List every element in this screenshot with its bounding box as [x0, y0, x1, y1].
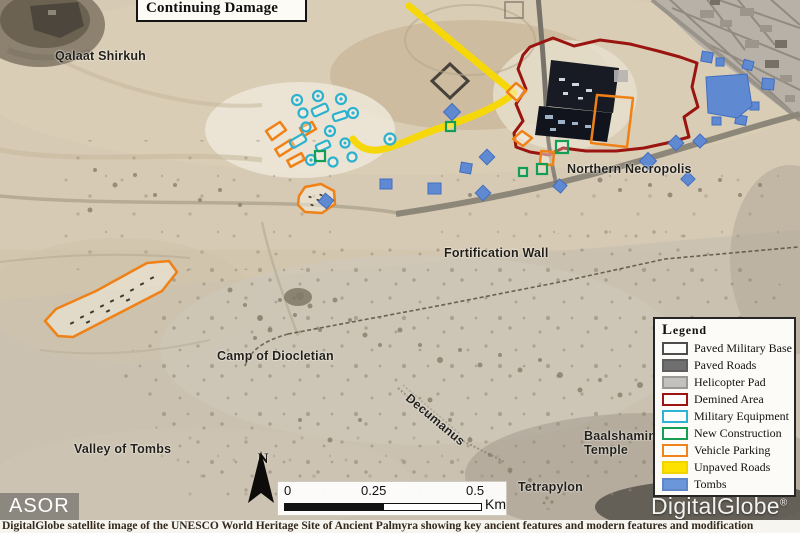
scale-tick-0: 0 [284, 483, 291, 498]
helicopter-pad-swatch [662, 376, 688, 389]
scale-tick-end: 0.5 [466, 483, 484, 498]
figure-caption: DigitalGlobe satellite image of the UNES… [0, 520, 800, 533]
legend-label: Paved Roads [694, 358, 756, 373]
legend-row: New Construction [662, 425, 794, 442]
legend-row: Paved Roads [662, 357, 794, 374]
legend-row: Unpaved Roads [662, 459, 794, 476]
military-equipment-swatch [662, 410, 688, 423]
figure-title: Continuing Damage [146, 0, 278, 17]
legend-label: Paved Military Base [694, 341, 792, 356]
legend-label: Unpaved Roads [694, 460, 770, 475]
scale-unit: Km [485, 496, 506, 512]
label-baalshamin-temple: Baalshamin Temple [584, 429, 656, 457]
north-arrow: N [247, 451, 279, 517]
paved-military-base-swatch [662, 342, 688, 355]
legend-label: Demined Area [694, 392, 764, 407]
legend-label: Tombs [694, 477, 727, 492]
legend-row: Helicopter Pad [662, 374, 794, 391]
legend-label: New Construction [694, 426, 782, 441]
vehicle-parking-swatch [662, 444, 688, 457]
legend-row: Demined Area [662, 391, 794, 408]
label-valley-of-tombs: Valley of Tombs [74, 442, 171, 456]
helicopter-pad [614, 70, 628, 82]
unpaved-roads-swatch [662, 461, 688, 474]
legend-label: Helicopter Pad [694, 375, 766, 390]
legend-box: Legend Paved Military Base Paved Roads H… [653, 317, 796, 497]
scale-bar: 0 0.25 0.5 Km [277, 481, 507, 516]
legend-row: Paved Military Base [662, 340, 794, 357]
demined-area-swatch [662, 393, 688, 406]
label-qalaat-shirkuh: Qalaat Shirkuh [55, 49, 146, 63]
scale-tick-mid: 0.25 [361, 483, 386, 498]
asor-logo: ASOR [0, 493, 79, 523]
label-camp-of-diocletian: Camp of Diocletian [217, 349, 334, 363]
label-tetrapylon: Tetrapylon [518, 480, 583, 494]
label-northern-necropolis: Northern Necropolis [567, 162, 692, 176]
new-construction-swatch [662, 427, 688, 440]
legend-row: Tombs [662, 476, 794, 493]
scale-bar-segment-filled [284, 503, 383, 511]
legend-row: Military Equipment [662, 408, 794, 425]
title-box: Continuing Damage [136, 0, 307, 22]
label-fortification-wall: Fortification Wall [444, 246, 549, 260]
digitalglobe-wordmark: DigitalGlobe [651, 493, 780, 519]
paved-roads-swatch [662, 359, 688, 372]
registered-mark: ® [780, 497, 788, 508]
legend-row: Vehicle Parking [662, 442, 794, 459]
legend-label: Military Equipment [694, 409, 789, 424]
digitalglobe-logo: DigitalGlobe® [651, 493, 788, 520]
tombs-swatch [662, 478, 688, 491]
north-arrow-icon [247, 451, 275, 505]
legend-label: Vehicle Parking [694, 443, 770, 458]
map-figure: Continuing Damage Qalaat Shirkuh Norther… [0, 0, 800, 533]
legend-title: Legend [662, 322, 794, 340]
scale-bar-segment-empty [383, 503, 482, 511]
